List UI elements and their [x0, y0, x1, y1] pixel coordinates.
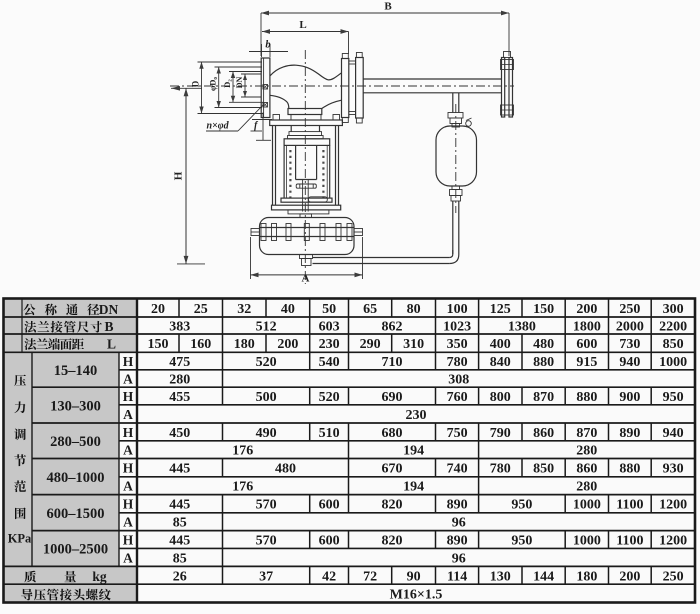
svg-text:144: 144 — [533, 569, 554, 584]
svg-text:880: 880 — [619, 462, 640, 477]
svg-text:150: 150 — [148, 337, 169, 352]
svg-text:96: 96 — [452, 516, 466, 531]
svg-text:1100: 1100 — [616, 498, 643, 513]
svg-text:n×φd: n×φd — [207, 121, 230, 132]
svg-text:200: 200 — [277, 337, 298, 352]
svg-text:520: 520 — [319, 390, 340, 405]
svg-text:475: 475 — [169, 355, 190, 370]
svg-text:930: 930 — [663, 462, 684, 477]
svg-text:600: 600 — [576, 337, 597, 352]
svg-text:850: 850 — [533, 462, 554, 477]
svg-text:1000: 1000 — [573, 534, 601, 549]
svg-text:H: H — [123, 533, 134, 548]
svg-text:A: A — [123, 372, 133, 387]
svg-text:280–500: 280–500 — [50, 434, 101, 450]
svg-text:445: 445 — [169, 462, 190, 477]
svg-text:20: 20 — [151, 302, 165, 317]
svg-text:940: 940 — [619, 355, 640, 370]
svg-text:860: 860 — [576, 462, 597, 477]
svg-text:160: 160 — [190, 337, 211, 352]
svg-text:740: 740 — [447, 462, 468, 477]
svg-text:194: 194 — [403, 480, 424, 495]
svg-text:M16×1.5: M16×1.5 — [390, 587, 443, 602]
svg-text:D₂: D₂ — [222, 79, 232, 88]
svg-text:A: A — [123, 479, 133, 494]
svg-text:940: 940 — [663, 426, 684, 441]
svg-text:670: 670 — [382, 462, 403, 477]
svg-text:180: 180 — [234, 337, 255, 352]
svg-text:50: 50 — [322, 302, 336, 317]
svg-text:862: 862 — [382, 320, 403, 335]
svg-text:280: 280 — [576, 480, 597, 495]
svg-text:H: H — [173, 171, 185, 180]
svg-text:b: b — [265, 40, 270, 51]
svg-text:890: 890 — [447, 534, 468, 549]
svg-text:H: H — [123, 497, 134, 512]
svg-text:85: 85 — [173, 551, 187, 566]
svg-text:1000–2500: 1000–2500 — [43, 542, 108, 558]
svg-text:200: 200 — [619, 569, 640, 584]
svg-text:480: 480 — [533, 337, 554, 352]
svg-text:790: 790 — [490, 426, 511, 441]
svg-text:850: 850 — [663, 337, 684, 352]
svg-text:840: 840 — [490, 355, 511, 370]
svg-text:1800: 1800 — [573, 320, 601, 335]
svg-text:KPa: KPa — [8, 532, 32, 546]
svg-text:820: 820 — [382, 498, 403, 513]
svg-text:125: 125 — [490, 302, 511, 317]
svg-text:85: 85 — [173, 516, 187, 531]
svg-text:780: 780 — [490, 462, 511, 477]
svg-text:100: 100 — [447, 302, 468, 317]
svg-text:1200: 1200 — [659, 534, 687, 549]
svg-text:780: 780 — [447, 355, 468, 370]
svg-text:L: L — [107, 336, 116, 351]
svg-text:40: 40 — [281, 302, 295, 317]
svg-text:37: 37 — [259, 569, 273, 584]
svg-text:1000: 1000 — [573, 498, 601, 513]
svg-text:250: 250 — [663, 569, 684, 584]
svg-text:A: A — [302, 273, 310, 285]
svg-text:455: 455 — [169, 390, 190, 405]
svg-text:80: 80 — [407, 302, 421, 317]
svg-text:480: 480 — [275, 462, 296, 477]
svg-text:445: 445 — [169, 498, 190, 513]
svg-text:445: 445 — [169, 534, 190, 549]
svg-text:26: 26 — [173, 569, 187, 584]
svg-text:1200: 1200 — [659, 498, 687, 513]
svg-text:300: 300 — [663, 302, 684, 317]
svg-text:600–1500: 600–1500 — [47, 506, 105, 522]
svg-text:730: 730 — [619, 337, 640, 352]
svg-text:760: 760 — [447, 390, 468, 405]
svg-text:820: 820 — [382, 534, 403, 549]
svg-text:H: H — [123, 461, 134, 476]
svg-text:383: 383 — [169, 320, 190, 335]
svg-text:570: 570 — [256, 534, 277, 549]
svg-text:150: 150 — [533, 302, 554, 317]
svg-text:512: 512 — [256, 320, 277, 335]
svg-text:540: 540 — [319, 355, 340, 370]
svg-text:180: 180 — [576, 569, 597, 584]
svg-text:890: 890 — [447, 498, 468, 513]
svg-text:950: 950 — [511, 498, 532, 513]
svg-text:880: 880 — [576, 390, 597, 405]
svg-text:570: 570 — [256, 498, 277, 513]
svg-text:480–1000: 480–1000 — [47, 470, 105, 486]
svg-text:880: 880 — [533, 355, 554, 370]
svg-text:96: 96 — [452, 551, 466, 566]
svg-text:176: 176 — [232, 480, 253, 495]
svg-text:A: A — [123, 550, 133, 565]
svg-text:H: H — [123, 425, 134, 440]
svg-text:130: 130 — [490, 569, 511, 584]
svg-text:L: L — [299, 19, 306, 31]
svg-text:600: 600 — [319, 498, 340, 513]
svg-text:32: 32 — [237, 302, 251, 317]
svg-text:15–140: 15–140 — [54, 363, 98, 379]
svg-text:250: 250 — [619, 302, 640, 317]
svg-text:114: 114 — [447, 569, 467, 584]
svg-text:B: B — [384, 1, 392, 13]
svg-text:B: B — [104, 319, 113, 334]
svg-text:130–300: 130–300 — [50, 398, 101, 414]
svg-text:603: 603 — [319, 320, 340, 335]
svg-text:200: 200 — [576, 302, 597, 317]
svg-text:1380: 1380 — [508, 320, 536, 335]
svg-text:950: 950 — [663, 390, 684, 405]
svg-text:490: 490 — [256, 426, 277, 441]
svg-text:350: 350 — [447, 337, 468, 352]
svg-text:750: 750 — [447, 426, 468, 441]
svg-text:1100: 1100 — [616, 534, 643, 549]
svg-text:680: 680 — [382, 426, 403, 441]
svg-text:65: 65 — [363, 302, 377, 317]
svg-text:90: 90 — [407, 569, 421, 584]
svg-text:870: 870 — [576, 426, 597, 441]
svg-text:800: 800 — [490, 390, 511, 405]
svg-text:308: 308 — [448, 373, 469, 388]
svg-text:230: 230 — [319, 337, 340, 352]
svg-text:72: 72 — [363, 569, 377, 584]
svg-text:510: 510 — [319, 426, 340, 441]
svg-text:A: A — [123, 515, 133, 530]
svg-text:690: 690 — [382, 390, 403, 405]
svg-text:890: 890 — [619, 426, 640, 441]
svg-text:860: 860 — [533, 426, 554, 441]
svg-text:42: 42 — [322, 569, 336, 584]
svg-text:400: 400 — [490, 337, 511, 352]
svg-text:2200: 2200 — [659, 320, 687, 335]
svg-text:290: 290 — [360, 337, 381, 352]
svg-text:1000: 1000 — [659, 355, 687, 370]
svg-text:176: 176 — [232, 444, 253, 459]
svg-text:DN: DN — [99, 302, 119, 317]
svg-text:kg: kg — [92, 569, 107, 584]
svg-text:520: 520 — [256, 355, 277, 370]
svg-text:870: 870 — [533, 390, 554, 405]
svg-text:DN: DN — [235, 77, 244, 89]
svg-text:280: 280 — [576, 444, 597, 459]
svg-text:915: 915 — [576, 355, 597, 370]
svg-text:900: 900 — [619, 390, 640, 405]
svg-text:A: A — [123, 443, 133, 458]
svg-text:500: 500 — [256, 390, 277, 405]
svg-text:H: H — [123, 354, 134, 369]
svg-text:450: 450 — [169, 426, 190, 441]
svg-text:280: 280 — [169, 373, 190, 388]
svg-text:A: A — [123, 407, 133, 422]
svg-text:25: 25 — [194, 302, 208, 317]
svg-text:φD₀: φD₀ — [208, 77, 218, 91]
svg-text:230: 230 — [406, 408, 427, 423]
svg-text:194: 194 — [403, 444, 424, 459]
svg-text:2000: 2000 — [616, 320, 644, 335]
svg-text:310: 310 — [403, 337, 424, 352]
svg-text:600: 600 — [319, 534, 340, 549]
svg-text:1023: 1023 — [443, 320, 471, 335]
svg-text:D: D — [191, 80, 201, 87]
svg-text:710: 710 — [382, 355, 403, 370]
svg-text:950: 950 — [511, 534, 532, 549]
svg-text:H: H — [123, 389, 134, 404]
